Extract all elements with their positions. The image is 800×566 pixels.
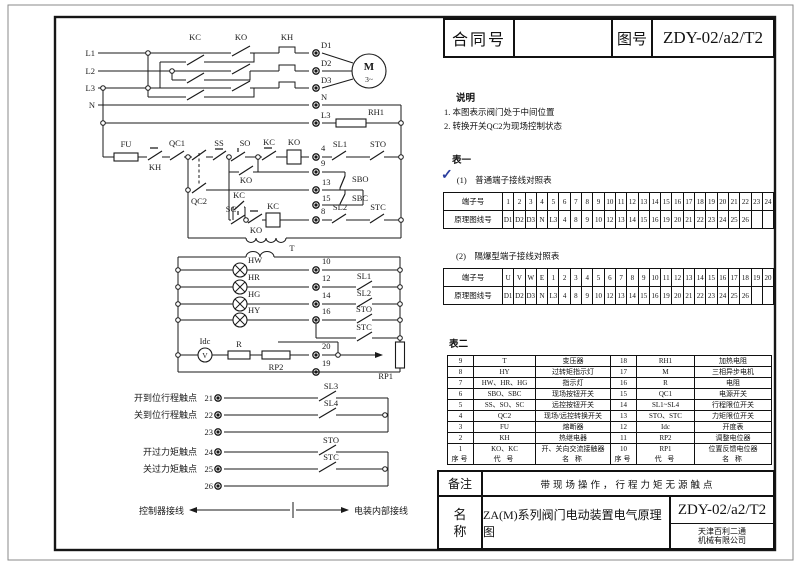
qc1-label: QC1: [169, 138, 185, 148]
terminal-25-label: 25: [205, 464, 214, 474]
component-table-header: 序号 代 号 名 称 序号 代 号 名 称: [448, 454, 771, 464]
stc-contact-label: STC: [323, 452, 339, 462]
motor-label: M: [364, 61, 375, 73]
terminal-cell: 7: [571, 193, 582, 210]
terminal-cell: 6: [559, 193, 570, 210]
terminal-cell: 24: [763, 193, 773, 210]
line-number-cell: D3: [526, 287, 537, 304]
terminal-row-header: 端子号: [444, 269, 503, 286]
component-no: 4: [448, 411, 474, 421]
drawing-no-footer: ZDY-02/a2/T2: [671, 497, 773, 524]
line-number-cell: 23: [706, 287, 717, 304]
terminal-cell: 4: [537, 193, 548, 210]
motor-phase-label: 3~: [365, 75, 373, 84]
ko-coil-symbol: [287, 150, 301, 164]
component-code: KO、KC: [474, 444, 536, 454]
component-no: 8: [448, 367, 474, 377]
terminal-20-label: 20: [322, 341, 331, 351]
rp1-potentiometer-symbol: [396, 342, 405, 368]
component-no: 9: [448, 356, 474, 366]
component-no: 18: [611, 356, 637, 366]
drawing-no-label: 图号: [613, 20, 653, 56]
line-number-cell: 14: [627, 287, 638, 304]
line-number-cell: 14: [627, 211, 638, 228]
close-torque-contact-label: 关过力矩触点: [143, 463, 197, 474]
component-no: 12: [611, 422, 637, 432]
component-name: 位置反馈电位器: [695, 444, 771, 454]
component-name: 调整电位器: [695, 433, 771, 443]
line-number-cell: L3: [548, 287, 559, 304]
terminal-cell: 4: [582, 269, 593, 286]
component-name: 过转矩指示灯: [536, 367, 611, 377]
component-code: KH: [474, 433, 536, 443]
terminal-cell: W: [526, 269, 537, 286]
terminal-16-label: 16: [322, 306, 331, 316]
notes-heading: 说明: [456, 90, 475, 104]
qc2-label: QC2: [191, 196, 207, 206]
line-number-cell: D2: [514, 211, 525, 228]
component-no: 7: [448, 378, 474, 388]
line-number-cell: 24: [718, 211, 729, 228]
ko-contactor-label: KO: [235, 32, 247, 42]
name-label-char1: 名: [453, 506, 466, 523]
component-code: RP2: [637, 433, 695, 443]
component-name: 远控按钮开关: [536, 400, 611, 410]
line-number-cell: 9: [582, 211, 593, 228]
component-row: 4 QC2 现场/远控转换开关 13 STO、STC 力矩限位开关: [448, 411, 771, 422]
phase-l1-label: L1: [86, 48, 95, 58]
terminal-cell: 3: [571, 269, 582, 286]
line-number-cell: 13: [616, 287, 627, 304]
contract-no-value: [515, 20, 613, 56]
fu-label: FU: [121, 139, 132, 149]
name-label-char2: 称: [453, 523, 466, 540]
terminal-24-label: 24: [205, 447, 214, 457]
sto-aux-label: STO: [356, 304, 372, 314]
terminal-cell: 15: [661, 193, 672, 210]
contact-blades: [148, 46, 384, 472]
terminal-cell: 1: [548, 269, 559, 286]
component-name: 加热电阻: [695, 356, 771, 366]
stc-aux-label: STC: [356, 322, 372, 332]
terminal-cell: 5: [548, 193, 559, 210]
component-table: 9 T 变压器 18 RH1 加热电阻 8 HY 过转矩指示灯 17 M 三相异…: [447, 355, 772, 465]
kc-coil-symbol: [266, 213, 280, 227]
terminal-cell: 13: [639, 193, 650, 210]
terminal-cell: 2: [559, 269, 570, 286]
kc-coil-label: KC: [267, 201, 279, 211]
line-number-cell: D2: [514, 287, 525, 304]
remark-label: 备注: [439, 472, 483, 495]
terminal-cell: 18: [740, 269, 751, 286]
terminal-cell: 1: [503, 193, 514, 210]
component-no: 6: [448, 389, 474, 399]
so-label: SO: [240, 138, 251, 148]
internal-wiring-label: 电装内部接线: [354, 505, 408, 516]
line-number-cell: 19: [661, 211, 672, 228]
line-number-cell: 12: [605, 211, 616, 228]
hr-lamp-label: HR: [248, 272, 260, 282]
controller-wiring-label: 控制器接线: [139, 505, 184, 516]
header-no: 序号: [611, 454, 637, 464]
component-code: RP1: [637, 444, 695, 454]
line-number-cell: D1: [503, 211, 514, 228]
line-number-cell: 16: [650, 287, 661, 304]
line-number-cell: 10: [593, 211, 604, 228]
terminal-cell: 13: [684, 269, 695, 286]
component-code: HW、HR、HG: [474, 378, 536, 388]
line-number-cell: D3: [526, 211, 537, 228]
line-number-cell: [763, 211, 773, 228]
hg-lamp-label: HG: [248, 289, 260, 299]
component-code: SL1~SL4: [637, 400, 695, 410]
line-number-cell: 9: [582, 287, 593, 304]
drawing-title: ZA(M)系列阀门电动装置电气原理图: [483, 497, 671, 548]
ss-label: SS: [214, 138, 224, 148]
terminal-cell: 14: [695, 269, 706, 286]
terminal-19-label: 19: [322, 358, 331, 368]
rp1-label: RP1: [378, 371, 393, 381]
fuse-symbol: [114, 153, 138, 161]
line-number-cell: 23: [706, 211, 717, 228]
line-number-cell: 15: [639, 287, 650, 304]
component-name: 变压器: [536, 356, 611, 366]
component-no: 16: [611, 378, 637, 388]
component-code: QC2: [474, 411, 536, 421]
idc-label: Idc: [200, 336, 211, 346]
name-block: 名 称 ZA(M)系列阀门电动装置电气原理图 ZDY-02/a2/T2 天津百利…: [437, 495, 775, 550]
terminal-d1-label: D1: [321, 40, 331, 50]
terminal-22-label: 22: [205, 410, 214, 420]
table1-sub1-title: (1) 普通端子接线对照表: [457, 170, 552, 186]
terminal-8-label: 8: [321, 206, 325, 216]
line-number-cell: N: [537, 287, 548, 304]
terminal-cell: 16: [672, 193, 683, 210]
sl1-aux-label: SL1: [357, 271, 371, 281]
component-no: 17: [611, 367, 637, 377]
close-travel-contact-label: 关到位行程触点: [134, 409, 197, 420]
terminal-d2-label: D2: [321, 58, 331, 68]
terminal-15-label: 15: [322, 193, 331, 203]
component-code: FU: [474, 422, 536, 432]
line-number-cell: 25: [729, 287, 740, 304]
kc-selfhold-label: KC: [233, 190, 245, 200]
component-name: 现场/远控转换开关: [536, 411, 611, 421]
kh-contact-label: KH: [149, 162, 161, 172]
rp2-label: RP2: [269, 362, 284, 372]
phase-l3-label: L3: [86, 83, 95, 93]
table1-sub1-row: ✓ (1) 普通端子接线对照表: [441, 170, 552, 186]
ko-selfhold-label: KO: [240, 175, 252, 185]
line-row-header: 原理图线号: [444, 287, 503, 304]
terminal-cell: 20: [718, 193, 729, 210]
component-row: 5 SS、SO、SC 远控按钮开关 14 SL1~SL4 行程限位开关: [448, 400, 771, 411]
sbo-label: SBO: [352, 174, 369, 184]
component-no: 14: [611, 400, 637, 410]
terminal-cell: 8: [582, 193, 593, 210]
component-name: 指示灯: [536, 378, 611, 388]
terminal-cell: 10: [650, 269, 661, 286]
stc-label: STC: [370, 202, 386, 212]
note-1: 1. 本图表示阀门处于中间位置: [444, 106, 555, 118]
sl1-label: SL1: [333, 139, 347, 149]
line-row-header: 原理图线号: [444, 211, 503, 228]
component-no: 5: [448, 400, 474, 410]
hy-lamp-label: HY: [248, 305, 260, 315]
terminal-cell: 12: [672, 269, 683, 286]
remark-text: 带现场操作，行程力矩无源触点: [483, 472, 773, 495]
open-torque-contact-label: 开过力矩触点: [143, 446, 197, 457]
line-number-cell: 21: [684, 287, 695, 304]
line-number-cell: 19: [661, 287, 672, 304]
ko-coil-label: KO: [288, 137, 300, 147]
component-row: 6 SBO、SBC 现场按钮开关 15 QC1 电源开关: [448, 389, 771, 400]
terminal-cell: 8: [627, 269, 638, 286]
remark-block: 备注 带现场操作，行程力矩无源触点: [437, 470, 775, 497]
sbc-label: SBC: [352, 193, 368, 203]
title-block: 合同号 图号 ZDY-02/a2/T2: [443, 18, 775, 58]
terminal-cell: V: [514, 269, 525, 286]
line-number-cell: 4: [559, 287, 570, 304]
component-name: 热继电器: [536, 433, 611, 443]
component-code: M: [637, 367, 695, 377]
terminal-26-label: 26: [205, 481, 214, 491]
header-code: 代 号: [474, 454, 536, 464]
component-code: T: [474, 356, 536, 366]
line-number-cell: 4: [559, 211, 570, 228]
component-code: SBO、SBC: [474, 389, 536, 399]
terminal-n-label: N: [321, 92, 327, 102]
component-name: 开、关向交流接触器: [536, 444, 611, 454]
terminal-cell: 15: [706, 269, 717, 286]
line-number-cell: 26: [740, 287, 751, 304]
component-name: 电阻: [695, 378, 771, 388]
name-label: 名 称: [439, 497, 483, 548]
terminal-10-label: 10: [322, 256, 331, 266]
header-code: 代 号: [637, 454, 695, 464]
line-number-cell: 22: [695, 287, 706, 304]
component-code: Idc: [637, 422, 695, 432]
check-mark-icon: ✓: [441, 170, 453, 182]
line-number-cell: [752, 211, 763, 228]
sl3-label: SL3: [324, 381, 338, 391]
component-row: 7 HW、HR、HG 指示灯 16 R 电阻: [448, 378, 771, 389]
component-name: 三相异步电机: [695, 367, 771, 377]
drawing-no-value: ZDY-02/a2/T2: [653, 20, 773, 56]
flameproof-terminal-table: 端子号 UVWE1234567891011121314151617181920 …: [443, 268, 774, 305]
terminal-cell: 18: [695, 193, 706, 210]
open-travel-contact-label: 开到位行程触点: [134, 392, 197, 403]
component-name: 行程限位开关: [695, 400, 771, 410]
component-row: 8 HY 过转矩指示灯 17 M 三相异步电机: [448, 367, 771, 378]
component-no: 2: [448, 433, 474, 443]
component-code: SS、SO、SC: [474, 400, 536, 410]
note-2: 2. 转换开关QC2为现场控制状态: [444, 120, 562, 132]
component-row: 1 KO、KC 开、关向交流接触器 10 RP1 位置反馈电位器: [448, 444, 771, 454]
terminal-cell: 6: [605, 269, 616, 286]
line-number-cell: 12: [605, 287, 616, 304]
transformer-label: T: [289, 243, 295, 253]
component-no: 10: [611, 444, 637, 454]
terminal-cell: 14: [650, 193, 661, 210]
line-number-cell: 15: [639, 211, 650, 228]
line-number-cell: 20: [672, 287, 683, 304]
terminal-cell: U: [503, 269, 514, 286]
terminal-9-label: 9: [321, 158, 325, 168]
phase-l2-label: L2: [86, 66, 95, 76]
terminal-cell: 17: [684, 193, 695, 210]
sto-label: STO: [370, 139, 386, 149]
company-name: 天津百利二通 机械有限公司: [671, 524, 773, 548]
terminal-12-label: 12: [322, 273, 331, 283]
terminal-cell: 3: [526, 193, 537, 210]
terminal-cell: 12: [627, 193, 638, 210]
terminal-row-header: 端子号: [444, 193, 503, 210]
terminal-14-label: 14: [322, 290, 331, 300]
component-no: 1: [448, 444, 474, 454]
terminal-cell: 22: [740, 193, 751, 210]
component-code: STO、STC: [637, 411, 695, 421]
component-name: 熔断器: [536, 422, 611, 432]
kh-relay-label: KH: [281, 32, 293, 42]
terminal-cell: 19: [752, 269, 763, 286]
neutral-label: N: [89, 100, 95, 110]
kc-contactor-label: KC: [189, 32, 201, 42]
r-label: R: [236, 339, 242, 349]
component-code: RH1: [637, 356, 695, 366]
line-number-cell: [763, 287, 773, 304]
component-code: HY: [474, 367, 536, 377]
terminal-cell: 2: [514, 193, 525, 210]
line-number-cell: 21: [684, 211, 695, 228]
header-no: 序号: [448, 454, 474, 464]
line-number-cell: 24: [718, 287, 729, 304]
terminal-cell: 5: [593, 269, 604, 286]
terminal-cell: 21: [729, 193, 740, 210]
terminal-cell: 11: [616, 193, 627, 210]
company-line2: 机械有限公司: [698, 536, 746, 546]
terminal-cell: 10: [605, 193, 616, 210]
line-number-cell: 8: [571, 211, 582, 228]
rp2-potentiometer-symbol: [262, 351, 290, 359]
kc-interlock-label: KC: [263, 137, 275, 147]
terminal-13-label: 13: [322, 177, 331, 187]
table2-caption: 表二: [449, 336, 468, 350]
line-number-cell: 16: [650, 211, 661, 228]
line-number-cell: 25: [729, 211, 740, 228]
rh1-label: RH1: [368, 107, 384, 117]
component-code: QC1: [637, 389, 695, 399]
terminal-d3-label: D3: [321, 75, 331, 85]
line-number-cell: D1: [503, 287, 514, 304]
line-number-cell: 26: [740, 211, 751, 228]
table1-caption: 表一: [452, 152, 471, 166]
component-no: 3: [448, 422, 474, 432]
line-number-cell: 22: [695, 211, 706, 228]
terminal-cell: 19: [706, 193, 717, 210]
terminal-cell: 16: [718, 269, 729, 286]
line-number-cell: L3: [548, 211, 559, 228]
sl2-aux-label: SL2: [357, 288, 371, 298]
terminal-cell: 11: [661, 269, 672, 286]
line-number-cell: N: [537, 211, 548, 228]
component-no: 15: [611, 389, 637, 399]
component-no: 13: [611, 411, 637, 421]
component-row: 9 T 变压器 18 RH1 加热电阻: [448, 356, 771, 367]
component-no: 11: [611, 433, 637, 443]
terminal-cell: 9: [593, 193, 604, 210]
heater-resistor-symbol: [336, 119, 366, 127]
terminal-cell: 9: [639, 269, 650, 286]
terminal-cell: 23: [752, 193, 763, 210]
hw-lamp-label: HW: [248, 255, 262, 265]
line-number-cell: 8: [571, 287, 582, 304]
component-code: R: [637, 378, 695, 388]
line-number-cell: [752, 287, 763, 304]
component-name: 电源开关: [695, 389, 771, 399]
sl2-label: SL2: [333, 202, 347, 212]
terminal-l3-label: L3: [321, 110, 330, 120]
component-row: 3 FU 熔断器 12 Idc 开度表: [448, 422, 771, 433]
sl4-label: SL4: [324, 398, 339, 408]
component-name: 开度表: [695, 422, 771, 432]
terminal-21-label: 21: [205, 393, 214, 403]
header-name: 名 称: [536, 454, 611, 464]
sc-label: SC: [226, 204, 237, 214]
terminal-cell: 20: [763, 269, 773, 286]
resistor-symbol: [228, 351, 250, 359]
sto-contact-label: STO: [323, 435, 339, 445]
line-number-cell: 13: [616, 211, 627, 228]
terminal-4-label: 4: [321, 143, 326, 153]
table1-sub2-title: (2) 隔爆型端子接线对照表: [456, 250, 559, 262]
terminal-cell: 7: [616, 269, 627, 286]
line-number-cell: 20: [672, 211, 683, 228]
contract-no-label: 合同号: [445, 20, 515, 56]
component-name: 力矩限位开关: [695, 411, 771, 421]
drawing-sheet: L1 L2 L3 N KC KO KH D1 D2 D3 N L3 RH1 M …: [0, 0, 800, 566]
terminal-cell: 17: [729, 269, 740, 286]
ordinary-terminal-table: 端子号 123456789101112131415161718192021222…: [443, 192, 774, 229]
terminal-23-label: 23: [205, 427, 214, 437]
ko-interlock-label: KO: [250, 225, 262, 235]
company-line1: 天津百利二通: [698, 527, 746, 537]
component-row: 2 KH 热继电器 11 RP2 调整电位器: [448, 433, 771, 444]
line-number-cell: 10: [593, 287, 604, 304]
terminal-cell: E: [537, 269, 548, 286]
header-name: 名 称: [695, 454, 771, 464]
component-name: 现场按钮开关: [536, 389, 611, 399]
voltmeter-label: V: [202, 351, 208, 360]
